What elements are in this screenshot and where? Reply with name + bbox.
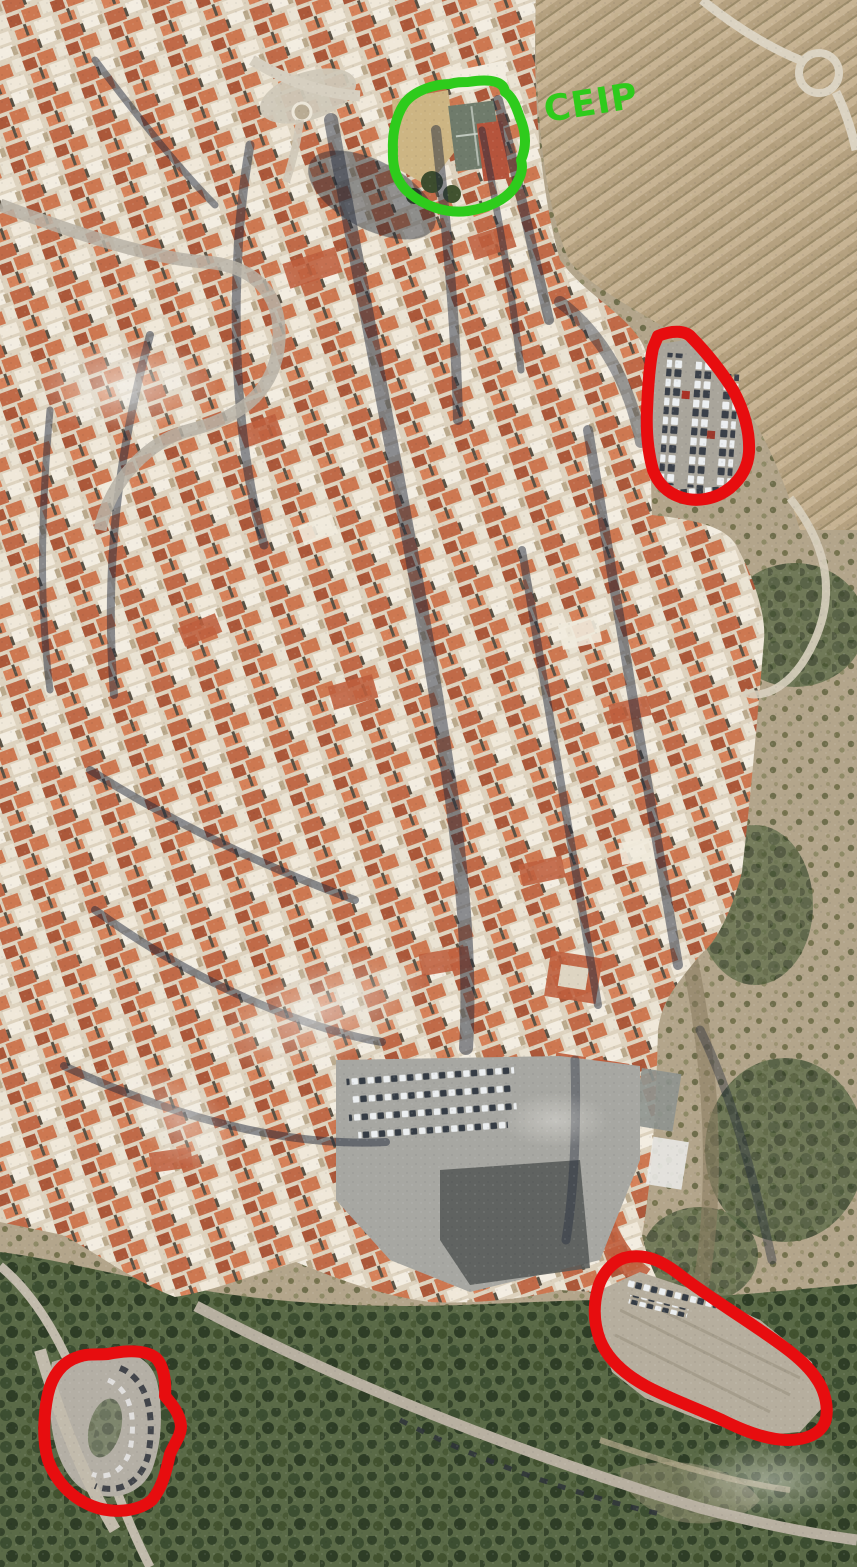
aerial-photo: CEIP: [0, 0, 857, 1567]
satellite-map: CEIP: [0, 0, 857, 1567]
photo-grain-overlay: [0, 0, 857, 1567]
